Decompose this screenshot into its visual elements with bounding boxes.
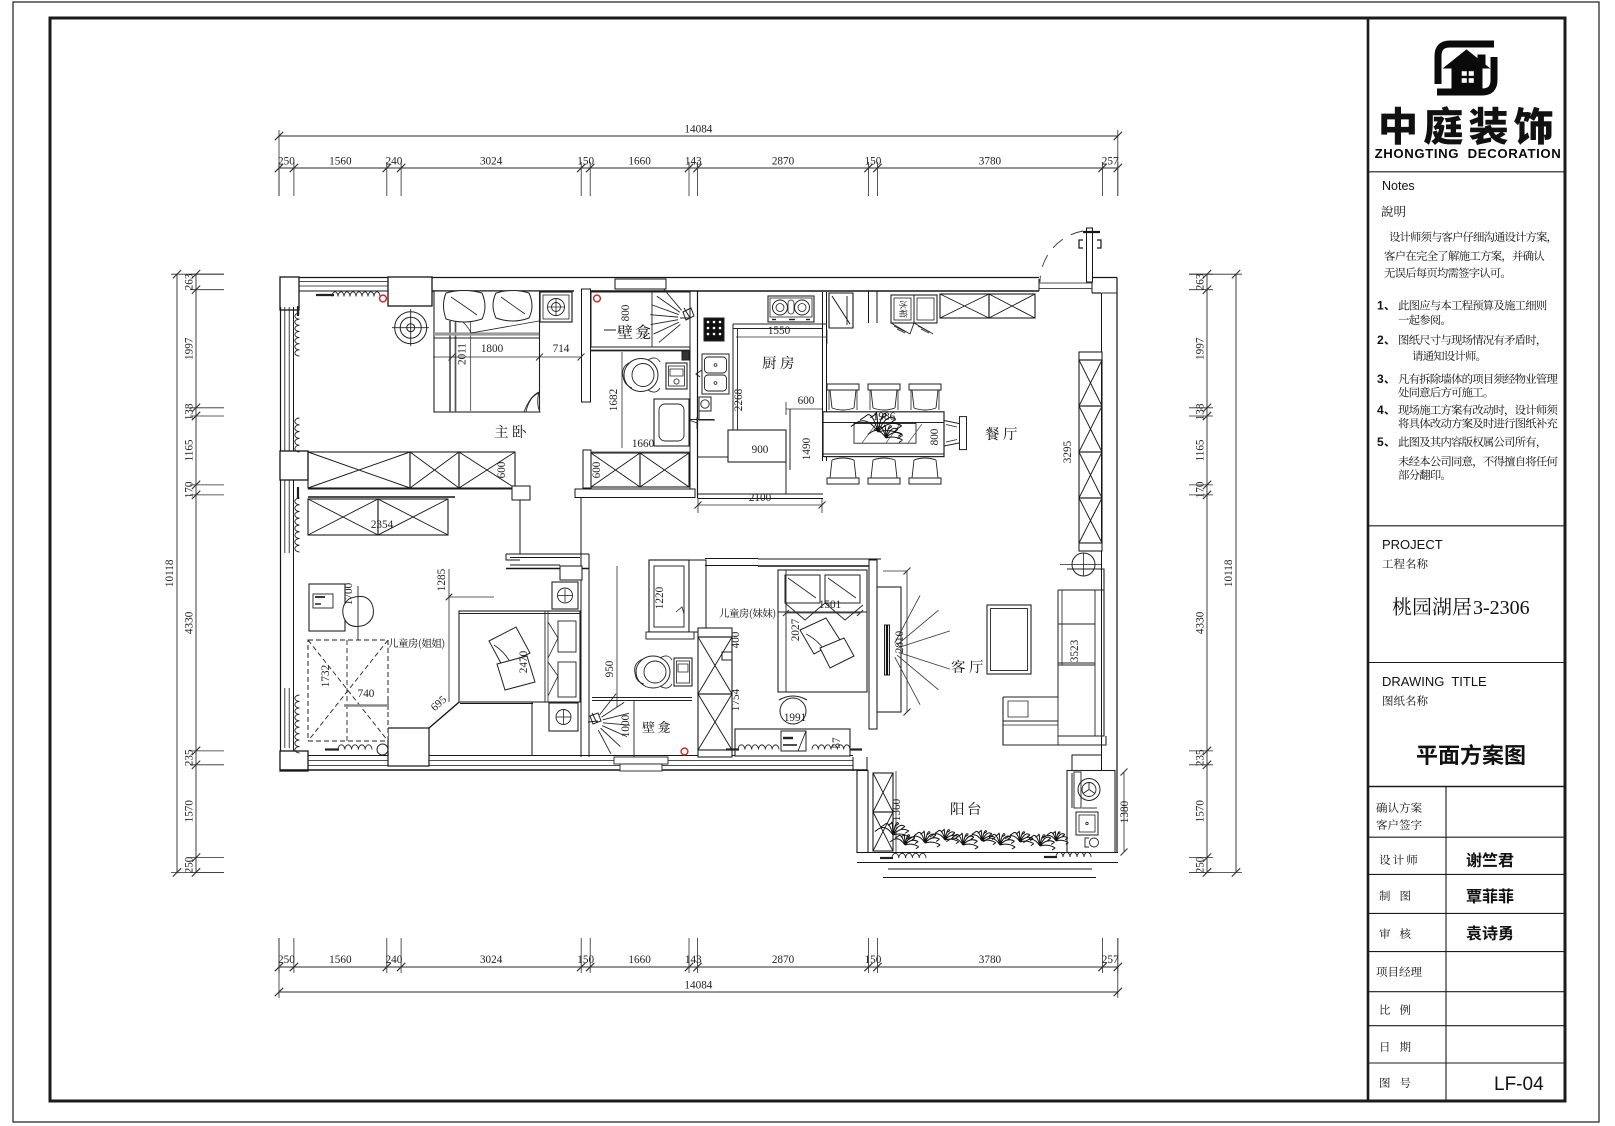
svg-text:800: 800	[620, 304, 632, 321]
svg-text:1360: 1360	[891, 798, 903, 821]
svg-text:1560: 1560	[329, 954, 352, 966]
svg-text:1732: 1732	[320, 665, 332, 687]
svg-text:2011: 2011	[457, 343, 469, 365]
svg-text:4330: 4330	[184, 611, 196, 634]
svg-text:2810: 2810	[894, 630, 906, 653]
svg-text:5: 5	[1377, 435, 1384, 449]
svg-text:2870: 2870	[772, 156, 795, 168]
svg-text:1991: 1991	[784, 712, 806, 724]
svg-text:PROJECT: PROJECT	[1382, 537, 1443, 552]
svg-text:740: 740	[358, 688, 375, 700]
svg-text:10118: 10118	[1223, 559, 1235, 587]
svg-text:3780: 3780	[979, 156, 1002, 168]
svg-text:3024: 3024	[480, 954, 503, 966]
svg-text:1570: 1570	[184, 800, 196, 823]
svg-text:1660: 1660	[632, 438, 655, 450]
svg-text:150: 150	[865, 156, 882, 168]
svg-text:150: 150	[865, 954, 882, 966]
svg-text:1380: 1380	[1119, 800, 1131, 823]
svg-text:3-2306: 3-2306	[1473, 597, 1530, 619]
svg-text:14084: 14084	[684, 124, 712, 136]
svg-text:1997: 1997	[1195, 337, 1207, 360]
svg-text:1000: 1000	[620, 714, 632, 737]
svg-text:1570: 1570	[1195, 800, 1207, 823]
svg-text:257: 257	[1102, 156, 1119, 168]
svg-text:3780: 3780	[979, 954, 1002, 966]
svg-text:800: 800	[929, 428, 941, 445]
svg-text:1754: 1754	[730, 688, 742, 711]
svg-text:240: 240	[386, 954, 403, 966]
svg-text:250: 250	[1195, 856, 1207, 873]
svg-text:2: 2	[1377, 333, 1384, 347]
svg-text:2027: 2027	[790, 618, 802, 641]
svg-text:1550: 1550	[768, 325, 791, 337]
svg-text:1285: 1285	[436, 568, 448, 591]
svg-text:LF-04: LF-04	[1494, 1074, 1544, 1095]
svg-text:150: 150	[577, 954, 594, 966]
svg-text:14084: 14084	[684, 980, 712, 992]
svg-text:170: 170	[184, 481, 196, 498]
svg-text:1165: 1165	[184, 439, 196, 461]
svg-text:235: 235	[1195, 749, 1207, 766]
svg-text:250: 250	[278, 954, 295, 966]
svg-text:1660: 1660	[628, 954, 651, 966]
svg-text:170: 170	[1195, 481, 1207, 498]
svg-text:3024: 3024	[480, 156, 503, 168]
svg-text:1: 1	[1377, 299, 1384, 313]
svg-text:4: 4	[1377, 403, 1384, 417]
svg-text:600: 600	[798, 395, 815, 407]
svg-text:257: 257	[1102, 954, 1119, 966]
svg-text:1997: 1997	[184, 337, 196, 360]
svg-text:1490: 1490	[801, 437, 813, 460]
svg-text:1682: 1682	[608, 389, 620, 411]
svg-text:250: 250	[278, 156, 295, 168]
svg-text:3295: 3295	[1062, 440, 1074, 463]
svg-text:600: 600	[591, 461, 603, 478]
svg-text:600: 600	[496, 461, 508, 478]
svg-text:2470: 2470	[518, 650, 530, 673]
svg-text:1986: 1986	[873, 411, 896, 423]
svg-text:1501: 1501	[819, 599, 841, 611]
svg-text:240: 240	[386, 156, 403, 168]
svg-text:714: 714	[553, 343, 570, 355]
svg-text:235: 235	[184, 749, 196, 766]
svg-text:150: 150	[577, 156, 594, 168]
svg-text:3523: 3523	[1069, 639, 1081, 662]
svg-text:1660: 1660	[628, 156, 651, 168]
svg-text:1220: 1220	[654, 586, 666, 609]
svg-text:263: 263	[1195, 273, 1207, 290]
svg-text:138: 138	[1195, 403, 1207, 420]
svg-text:DRAWING TITLE: DRAWING TITLE	[1382, 674, 1487, 689]
svg-text:138: 138	[184, 403, 196, 420]
svg-text:250: 250	[184, 856, 196, 873]
svg-text:2268: 2268	[733, 388, 745, 411]
svg-text:Notes: Notes	[1382, 179, 1415, 193]
svg-text:2354: 2354	[371, 519, 394, 531]
svg-text:10118: 10118	[164, 559, 176, 587]
svg-text:143: 143	[685, 156, 702, 168]
svg-text:3: 3	[1377, 372, 1384, 386]
svg-text:2100: 2100	[749, 492, 772, 504]
svg-text:1800: 1800	[481, 343, 504, 355]
svg-text:2870: 2870	[772, 954, 795, 966]
svg-text:263: 263	[184, 273, 196, 290]
svg-text:143: 143	[685, 954, 702, 966]
svg-text:4330: 4330	[1195, 611, 1207, 634]
svg-text:900: 900	[752, 444, 769, 456]
svg-text:1560: 1560	[329, 156, 352, 168]
svg-text:ZHONGTING DECORATION: ZHONGTING DECORATION	[1375, 146, 1562, 161]
svg-text:400: 400	[730, 631, 742, 648]
svg-text:1700: 1700	[343, 582, 355, 605]
svg-text:950: 950	[604, 660, 616, 677]
svg-text:1165: 1165	[1195, 439, 1207, 461]
